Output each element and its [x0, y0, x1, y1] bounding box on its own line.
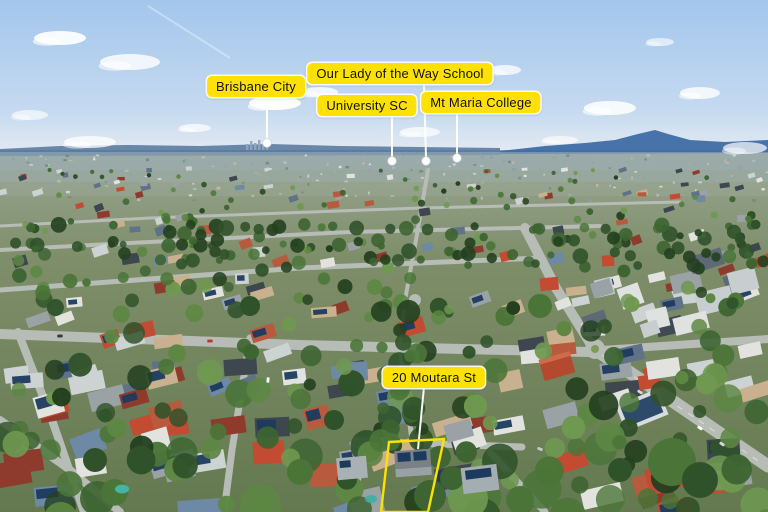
aerial-listing-photo: Brisbane City Our Lady of the Way School…	[0, 0, 768, 512]
label-property-address: 20 Moutara St	[383, 367, 485, 388]
label-university-sc: University SC	[317, 95, 416, 116]
label-brisbane-city: Brisbane City	[207, 76, 305, 97]
label-mt-maria-college: Mt Maria College	[421, 92, 540, 113]
label-our-lady-of-the-way-school: Our Lady of the Way School	[307, 63, 492, 84]
